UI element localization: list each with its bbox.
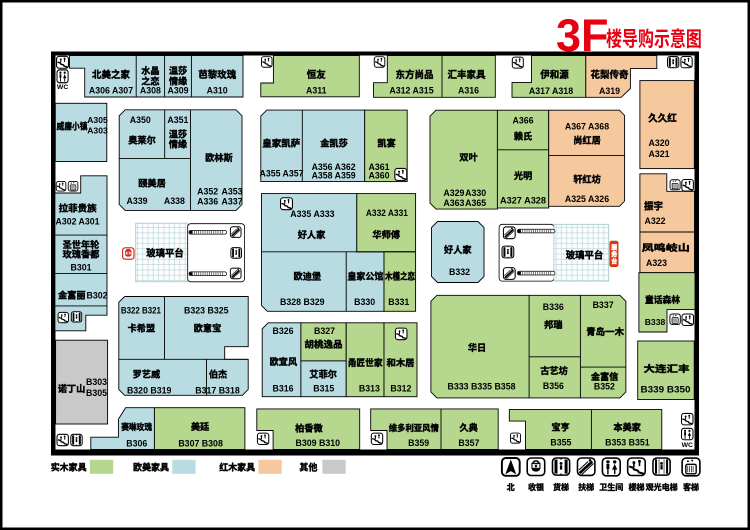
- svg-text:汇丰家具: 汇丰家具: [447, 69, 486, 81]
- svg-text:B353 B351: B353 B351: [605, 438, 650, 448]
- svg-text:双叶: 双叶: [459, 153, 477, 163]
- svg-text:久典: 久典: [460, 422, 478, 433]
- svg-text:B333 B335 B358: B333 B335 B358: [448, 382, 516, 392]
- svg-text:B305: B305: [86, 388, 107, 398]
- svg-text:古艺坊: 古艺坊: [540, 365, 568, 376]
- svg-text:好人家: 好人家: [444, 244, 472, 255]
- svg-text:客梯: 客梯: [683, 482, 699, 492]
- svg-text:玫瑰香都: 玫瑰香都: [63, 249, 100, 260]
- svg-text:北美之家: 北美之家: [92, 69, 131, 81]
- svg-text:A327 A328: A327 A328: [500, 196, 546, 206]
- svg-text:华日: 华日: [468, 342, 486, 353]
- svg-text:欧林斯: 欧林斯: [205, 152, 233, 163]
- svg-text:欧美家具: 欧美家具: [133, 461, 170, 472]
- svg-text:扶梯: 扶梯: [578, 482, 594, 492]
- svg-text:货梯: 货梯: [553, 482, 569, 492]
- svg-text:B338: B338: [645, 317, 666, 327]
- svg-text:甬匠世家: 甬匠世家: [348, 357, 383, 368]
- svg-text:B337: B337: [593, 300, 614, 310]
- svg-text:A332 A331: A332 A331: [366, 208, 408, 218]
- svg-text:柏香微: 柏香微: [295, 423, 323, 434]
- svg-text:圣世年轮: 圣世年轮: [63, 239, 100, 250]
- svg-text:皇家公馆: 皇家公馆: [347, 271, 383, 282]
- svg-text:楼导购示意图: 楼导购示意图: [606, 27, 702, 50]
- svg-text:A365: A365: [465, 198, 486, 208]
- svg-text:A355 A357: A355 A357: [260, 169, 304, 179]
- svg-text:A322: A322: [644, 216, 665, 226]
- svg-text:WC: WC: [57, 84, 68, 91]
- svg-text:A303: A303: [87, 125, 108, 135]
- svg-text:A337: A337: [221, 196, 242, 206]
- svg-text:A302 A301: A302 A301: [56, 217, 100, 227]
- svg-text:水晶: 水晶: [141, 65, 159, 76]
- svg-text:其他: 其他: [299, 461, 318, 472]
- svg-text:华师傅: 华师傅: [372, 229, 400, 240]
- svg-text:B301: B301: [70, 263, 91, 273]
- svg-text:卡希盟: 卡希盟: [128, 323, 156, 334]
- svg-text:光明: 光明: [514, 170, 532, 181]
- svg-text:务: 务: [611, 251, 617, 259]
- svg-text:卫生间: 卫生间: [599, 482, 623, 492]
- svg-text:A363: A363: [443, 198, 464, 208]
- svg-text:北: 北: [507, 482, 515, 492]
- svg-text:情缘: 情缘: [169, 138, 187, 149]
- svg-text:A308: A308: [140, 86, 161, 96]
- svg-text:A306 A307: A306 A307: [89, 86, 133, 96]
- svg-text:赛琳玫瑰: 赛琳玫瑰: [121, 421, 152, 432]
- svg-text:威廉小镇: 威廉小镇: [57, 120, 88, 131]
- svg-text:B316: B316: [272, 384, 293, 394]
- svg-text:A316: A316: [458, 86, 479, 96]
- svg-text:B359: B359: [408, 438, 429, 448]
- svg-text:服: 服: [611, 245, 617, 252]
- svg-text:欧迪堡: 欧迪堡: [294, 271, 322, 282]
- svg-text:A305: A305: [87, 115, 108, 125]
- svg-text:楼梯: 楼梯: [629, 482, 645, 492]
- svg-text:B303: B303: [86, 377, 107, 387]
- svg-text:B315: B315: [313, 384, 334, 394]
- svg-text:A351: A351: [167, 115, 188, 125]
- svg-text:A329: A329: [443, 188, 464, 198]
- svg-text:A320: A320: [648, 138, 669, 148]
- svg-text:B323 B325: B323 B325: [184, 306, 229, 316]
- svg-text:颐美居: 颐美居: [138, 177, 166, 188]
- svg-text:红木家具: 红木家具: [219, 461, 256, 472]
- svg-text:艾菲尔: 艾菲尔: [309, 369, 337, 380]
- svg-text:大连汇丰: 大连汇丰: [644, 363, 690, 374]
- svg-text:实木家具: 实木家具: [51, 461, 88, 472]
- svg-text:B356: B356: [543, 381, 564, 391]
- svg-text:A310: A310: [207, 86, 228, 96]
- svg-text:美廷: 美廷: [191, 421, 209, 432]
- svg-text:B327: B327: [314, 326, 335, 336]
- svg-text:A366: A366: [512, 116, 533, 126]
- svg-text:童话森林: 童话森林: [645, 294, 680, 305]
- svg-text:木槿之恋: 木槿之恋: [385, 271, 415, 282]
- svg-text:欧宜风: 欧宜风: [270, 356, 298, 367]
- svg-text:A339: A339: [126, 196, 147, 206]
- svg-text:维多利亚风情: 维多利亚风情: [389, 422, 439, 433]
- svg-text:B330: B330: [354, 297, 375, 307]
- svg-text:赖氏: 赖氏: [514, 130, 532, 141]
- svg-text:和木居: 和木居: [387, 357, 415, 368]
- svg-text:A311: A311: [306, 86, 327, 96]
- svg-text:A330: A330: [465, 188, 486, 198]
- svg-text:A353: A353: [221, 186, 242, 196]
- svg-text:B302: B302: [87, 291, 108, 301]
- svg-text:伯杰: 伯杰: [209, 369, 227, 380]
- svg-text:轩红坊: 轩红坊: [573, 174, 601, 185]
- svg-text:A360: A360: [368, 170, 389, 180]
- svg-text:B307 B308: B307 B308: [178, 439, 223, 449]
- svg-text:收银: 收银: [528, 482, 544, 492]
- svg-text:A352: A352: [197, 186, 218, 196]
- svg-text:花梨传奇: 花梨传奇: [590, 69, 629, 81]
- svg-text:温莎: 温莎: [169, 65, 187, 76]
- svg-text:台: 台: [611, 258, 617, 266]
- svg-text:B317 B318: B317 B318: [195, 386, 240, 396]
- svg-text:奥莱尔: 奥莱尔: [128, 135, 156, 146]
- svg-text:金凯莎: 金凯莎: [320, 138, 348, 149]
- svg-text:A312 A315: A312 A315: [389, 86, 433, 96]
- svg-text:恒友: 恒友: [307, 69, 327, 81]
- svg-text:振宇: 振宇: [644, 201, 663, 213]
- svg-text:A338: A338: [164, 196, 185, 206]
- svg-text:青岛一木: 青岛一木: [586, 326, 624, 337]
- svg-text:拉菲贵族: 拉菲贵族: [59, 203, 97, 214]
- svg-text:A367 A368: A367 A368: [565, 121, 609, 131]
- svg-text:玻璃平台: 玻璃平台: [566, 250, 604, 261]
- svg-text:好人家: 好人家: [298, 229, 326, 240]
- svg-text:宝亨: 宝亨: [551, 422, 569, 433]
- svg-text:B339 B350: B339 B350: [641, 385, 691, 395]
- svg-text:诺丁山: 诺丁山: [58, 383, 86, 394]
- svg-text:B322 B321: B322 B321: [121, 306, 161, 316]
- svg-text:A350: A350: [130, 115, 151, 125]
- svg-text:尚红居: 尚红居: [573, 135, 601, 146]
- svg-text:A319: A319: [599, 86, 620, 96]
- svg-text:胡桃逸品: 胡桃逸品: [305, 338, 343, 349]
- svg-text:A335 A333: A335 A333: [290, 209, 334, 219]
- svg-text:B355: B355: [550, 438, 571, 448]
- svg-text:欧意宝: 欧意宝: [194, 323, 222, 334]
- svg-text:芭黎玫瑰: 芭黎玫瑰: [198, 69, 237, 81]
- svg-text:A325 A326: A325 A326: [565, 194, 609, 204]
- svg-text:邦瑞: 邦瑞: [544, 319, 562, 330]
- svg-text:久久红: 久久红: [648, 113, 677, 125]
- svg-text:B328 B329: B328 B329: [280, 297, 325, 307]
- svg-text:皇家凯萨: 皇家凯萨: [262, 138, 300, 149]
- svg-text:B313: B313: [359, 384, 380, 394]
- svg-text:B306: B306: [126, 439, 147, 449]
- svg-text:金富信: 金富信: [591, 371, 619, 382]
- svg-text:凯宴: 凯宴: [377, 138, 395, 149]
- svg-text:B332: B332: [449, 267, 470, 277]
- svg-text:A309: A309: [167, 86, 188, 96]
- svg-text:凤鸣岐山: 凤鸣岐山: [642, 242, 690, 253]
- svg-text:A317 A318: A317 A318: [529, 86, 573, 96]
- svg-text:B352: B352: [594, 382, 615, 392]
- svg-text:观光电梯: 观光电梯: [646, 482, 678, 492]
- svg-text:A336: A336: [197, 196, 218, 206]
- svg-text:B331: B331: [388, 297, 409, 307]
- svg-text:B336: B336: [543, 302, 564, 312]
- svg-text:B320 B319: B320 B319: [127, 386, 172, 396]
- svg-text:伊和源: 伊和源: [540, 69, 569, 81]
- svg-text:温莎: 温莎: [169, 128, 187, 139]
- svg-text:B312: B312: [390, 384, 411, 394]
- svg-text:A358 A359: A358 A359: [312, 170, 356, 180]
- svg-text:WC: WC: [682, 442, 693, 449]
- svg-text:A323: A323: [646, 258, 667, 268]
- svg-text:A321: A321: [648, 149, 669, 159]
- svg-text:金富丽: 金富丽: [58, 290, 86, 301]
- svg-text:B326: B326: [272, 326, 293, 336]
- svg-text:B309 B310: B309 B310: [296, 438, 341, 448]
- svg-text:玻璃平台: 玻璃平台: [146, 248, 184, 259]
- svg-text:本美家: 本美家: [613, 422, 641, 433]
- svg-text:B357: B357: [458, 438, 479, 448]
- svg-text:东方尚品: 东方尚品: [395, 69, 433, 81]
- svg-text:罗艺威: 罗艺威: [133, 369, 161, 380]
